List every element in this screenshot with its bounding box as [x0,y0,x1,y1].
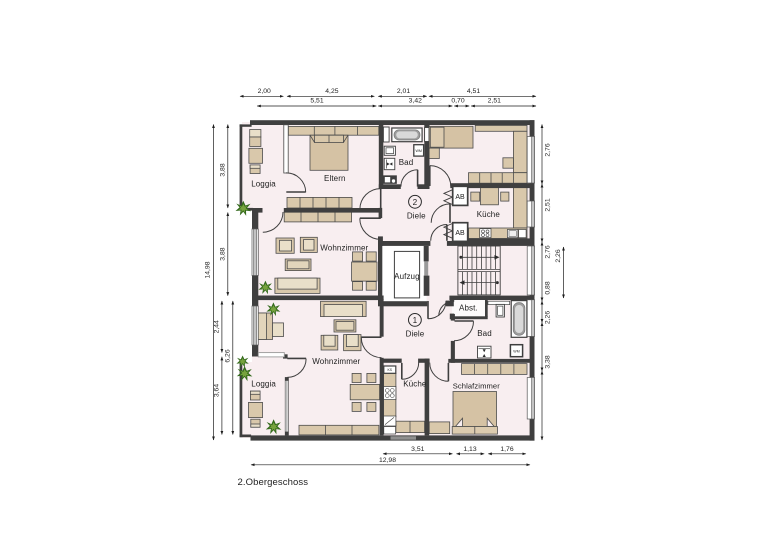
svg-text:1,76: 1,76 [500,446,513,453]
svg-text:2,01: 2,01 [397,88,410,95]
svg-text:0,88: 0,88 [545,281,552,294]
svg-text:4,25: 4,25 [325,88,338,95]
svg-text:Küche: Küche [477,210,501,219]
svg-text:4,51: 4,51 [467,88,480,95]
svg-text:2: 2 [413,198,418,207]
svg-text:2,51: 2,51 [488,98,501,105]
svg-text:2,76: 2,76 [545,245,552,258]
svg-text:2,00: 2,00 [258,88,271,95]
svg-text:Eltern: Eltern [324,174,346,183]
svg-text:Loggia: Loggia [251,380,276,389]
svg-text:2,51: 2,51 [545,198,552,211]
svg-text:Wohnzimmer: Wohnzimmer [320,243,368,252]
svg-text:3,88: 3,88 [219,247,226,260]
svg-text:Abst.: Abst. [459,304,478,313]
svg-text:2,44: 2,44 [213,320,220,333]
svg-text:2,76: 2,76 [545,143,552,156]
svg-text:1: 1 [413,316,418,325]
svg-text:6,26: 6,26 [224,349,231,362]
svg-text:2,26: 2,26 [555,249,562,262]
svg-text:Bad: Bad [399,158,414,167]
svg-text:3,42: 3,42 [409,98,422,105]
svg-text:0,70: 0,70 [451,98,464,105]
svg-text:WM: WM [416,149,422,153]
svg-text:Schlafzimmer: Schlafzimmer [453,382,501,391]
svg-text:3,51: 3,51 [411,446,424,453]
svg-text:2.Obergeschoss: 2.Obergeschoss [238,477,309,488]
svg-text:Diele: Diele [407,212,426,221]
svg-text:WM: WM [513,349,519,353]
svg-text:Küche: Küche [403,380,427,389]
svg-text:3,38: 3,38 [545,355,552,368]
svg-text:1,13: 1,13 [463,446,476,453]
svg-text:5,51: 5,51 [310,98,323,105]
svg-text:3,88: 3,88 [219,163,226,176]
svg-text:Diele: Diele [406,330,425,339]
svg-text:Bad: Bad [477,329,492,338]
svg-text:AB: AB [455,230,465,237]
svg-text:Aufzug: Aufzug [394,272,420,281]
svg-text:KS: KS [388,368,393,372]
svg-text:AB: AB [455,194,465,201]
svg-text:Loggia: Loggia [251,179,276,188]
svg-text:14,98: 14,98 [205,261,212,278]
svg-text:Wohnzimmer: Wohnzimmer [312,357,360,366]
svg-text:3,64: 3,64 [213,384,220,397]
svg-text:2,26: 2,26 [545,311,552,324]
svg-text:12,98: 12,98 [379,457,396,464]
